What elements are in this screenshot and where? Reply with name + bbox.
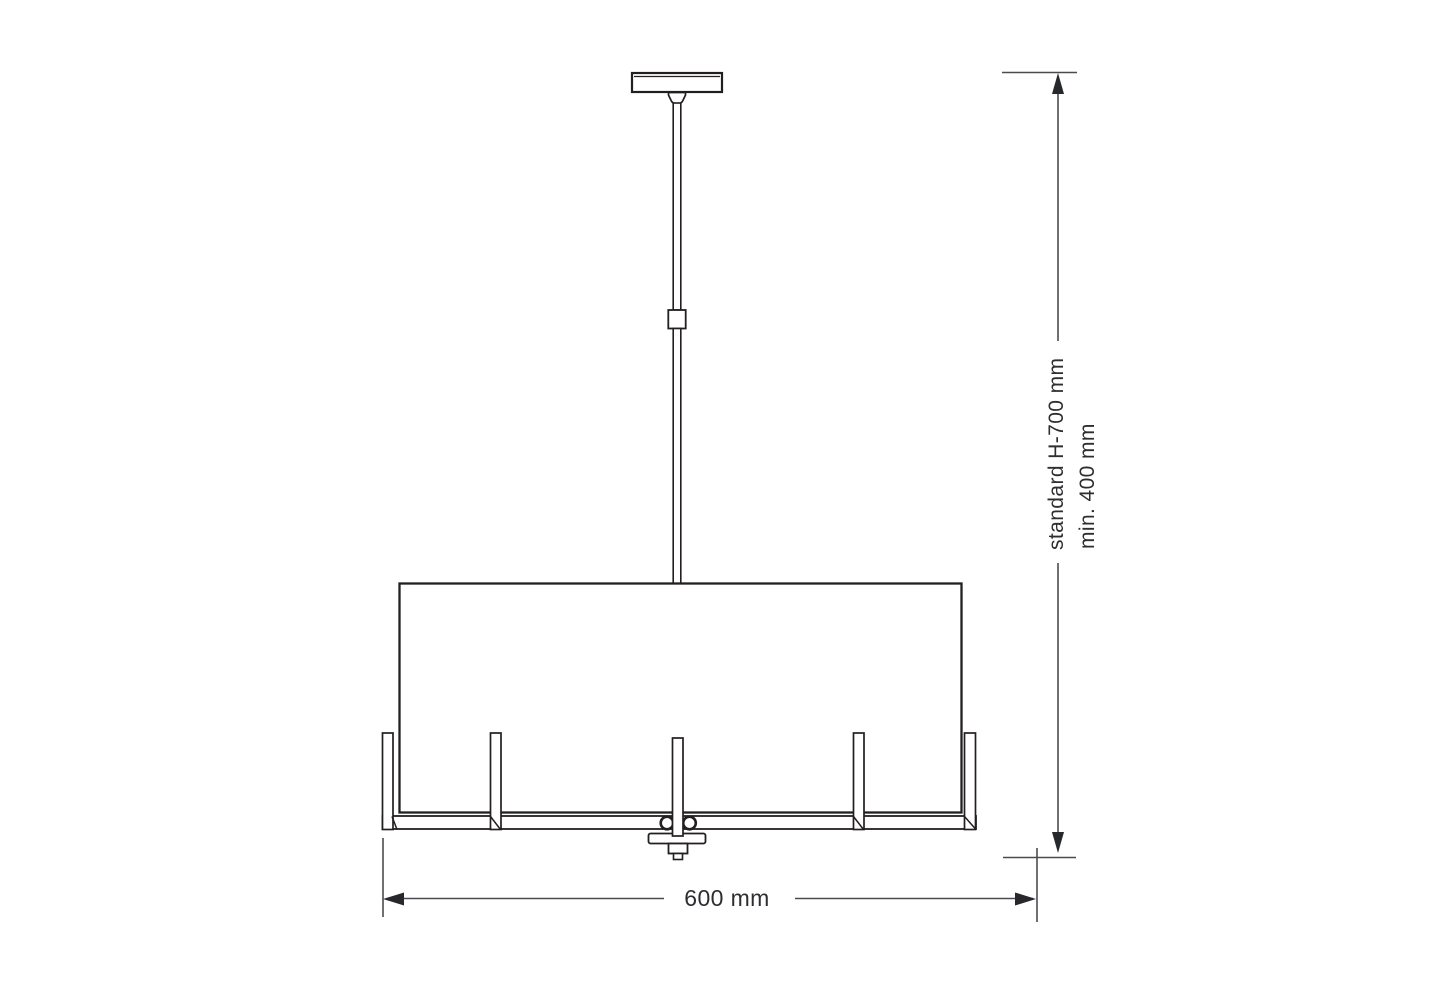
arrow-right-icon	[1015, 893, 1036, 906]
arrow-up-icon	[1052, 73, 1064, 94]
candle-post-2	[491, 733, 502, 830]
drawing-page: 600 mm standard H-700 mm min. 400 mm	[0, 0, 1429, 1000]
candle-post-4	[854, 733, 865, 830]
width-dim-label: 600 mm	[684, 885, 769, 911]
candle-post-left-end	[383, 733, 394, 830]
height-dim-standard-label: standard H-700 mm	[1045, 358, 1068, 550]
canopy-neck	[669, 93, 686, 104]
arrow-down-icon	[1052, 832, 1064, 853]
rod-coupling	[668, 310, 685, 329]
hub-finial	[674, 854, 683, 860]
candle-post-center	[673, 738, 684, 836]
hub-ring-left	[661, 817, 674, 830]
suspension-rod-upper	[673, 103, 681, 310]
hub-stem	[669, 844, 688, 854]
height-dim-min-label: min. 400 mm	[1076, 423, 1099, 549]
suspension-rod-lower	[673, 329, 681, 584]
arrow-left-icon	[383, 893, 404, 906]
pendant-lamp-fixture	[383, 73, 977, 860]
hub-ring-right	[683, 817, 696, 830]
candle-post-right-end	[965, 733, 976, 830]
technical-drawing-canvas: 600 mm standard H-700 mm min. 400 mm	[0, 0, 1429, 1000]
